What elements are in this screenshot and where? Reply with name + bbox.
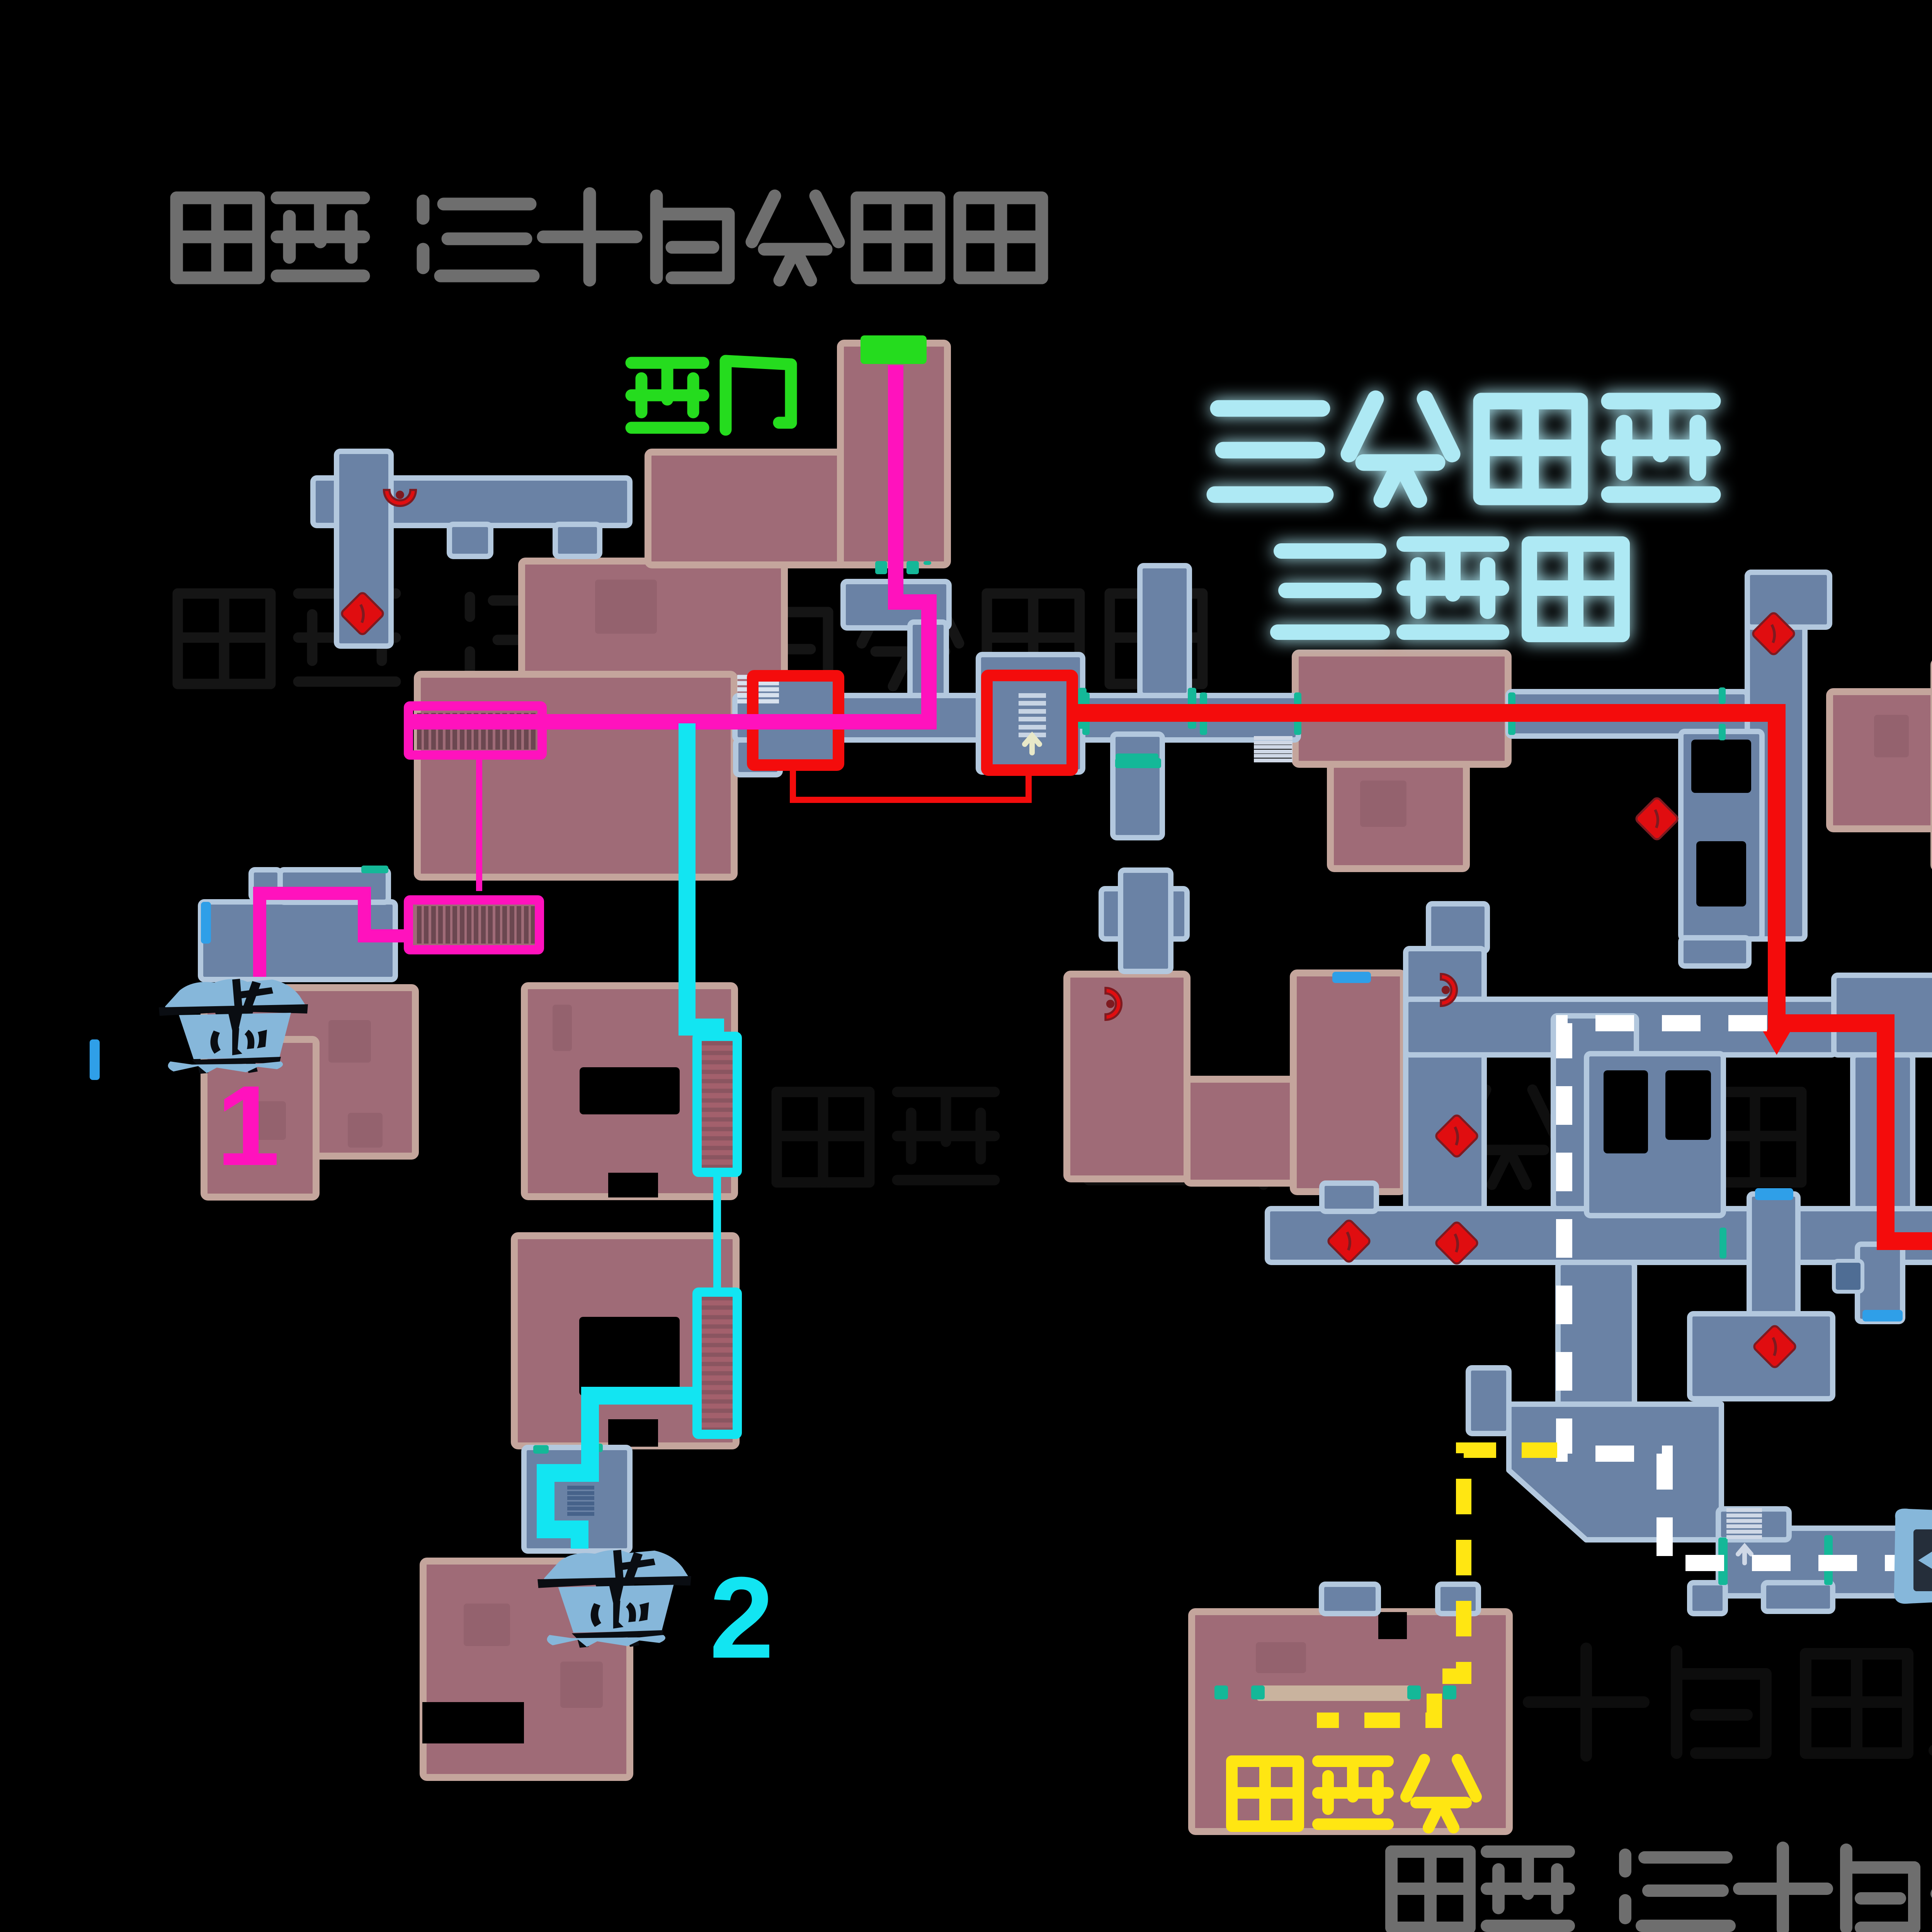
svg-text:2: 2 (709, 1553, 774, 1682)
svg-text:1: 1 (216, 1062, 280, 1189)
